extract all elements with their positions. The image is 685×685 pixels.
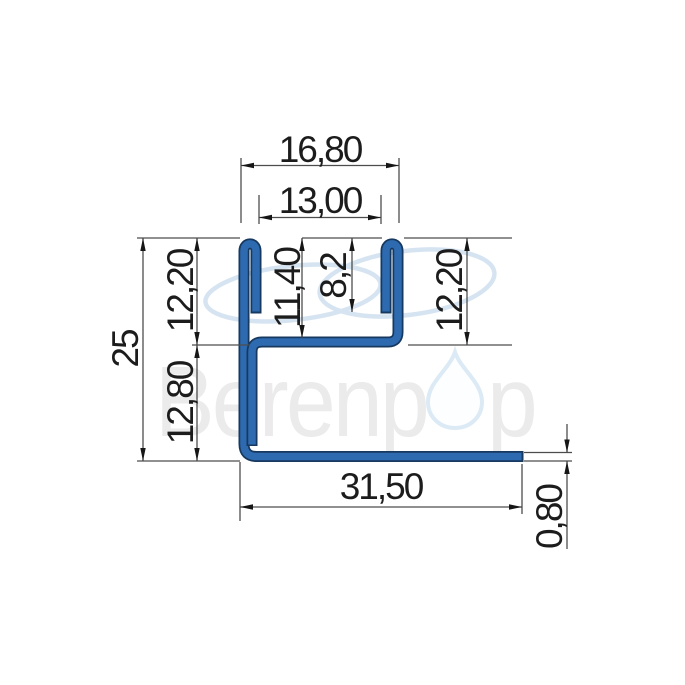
dim-total-height-label: 25: [105, 329, 146, 368]
dim-left-lower-label: 12,80: [160, 360, 201, 444]
arrow-left-icon: [241, 163, 254, 168]
arrow-down-icon: [464, 332, 469, 345]
dim-right-upper-label: 12,20: [429, 248, 470, 332]
dim-top-inner: 13,00: [259, 180, 381, 221]
dim-lip-depth-label: 8,2: [313, 253, 354, 299]
dim-right-upper: 12,20: [429, 238, 470, 345]
arrow-right-icon: [386, 163, 399, 168]
watermark-text-suffix: p: [487, 346, 535, 458]
arrow-up-icon: [140, 238, 145, 251]
arrow-up-icon: [464, 238, 469, 251]
arrow-up-icon: [349, 238, 354, 251]
arrow-down-icon: [194, 332, 199, 345]
dim-top-outer: 16,80: [241, 129, 399, 170]
dim-left-upper-label: 12,20: [160, 248, 201, 332]
dim-top-outer-label: 16,80: [279, 129, 363, 170]
arrow-down-icon: [564, 440, 569, 453]
technical-drawing-canvas: Berenp p 16,80: [0, 0, 685, 685]
dim-bottom-flange-label: 31,50: [340, 466, 424, 507]
arrow-down-icon: [140, 448, 145, 461]
arrow-left-icon: [240, 504, 253, 509]
profile-dimension-drawing: Berenp p 16,80: [0, 0, 685, 685]
dim-bottom-flange: 31,50: [240, 466, 522, 510]
dim-lip-depth: 8,2: [313, 238, 355, 312]
arrow-up-icon: [564, 461, 569, 474]
dim-slot-depth-label: 11,40: [267, 247, 308, 328]
watermark-drop-icon: [428, 352, 482, 428]
arrow-left-icon: [259, 215, 272, 220]
dim-thickness-label: 0,80: [529, 484, 570, 549]
dim-thickness: 0,80: [529, 424, 570, 549]
dim-slot-depth: 11,40: [267, 238, 308, 338]
arrow-right-icon: [509, 504, 522, 509]
dim-top-inner-label: 13,00: [279, 180, 363, 221]
arrow-up-icon: [194, 238, 199, 251]
arrow-right-icon: [368, 215, 381, 220]
dim-total-height: 25: [105, 238, 146, 461]
